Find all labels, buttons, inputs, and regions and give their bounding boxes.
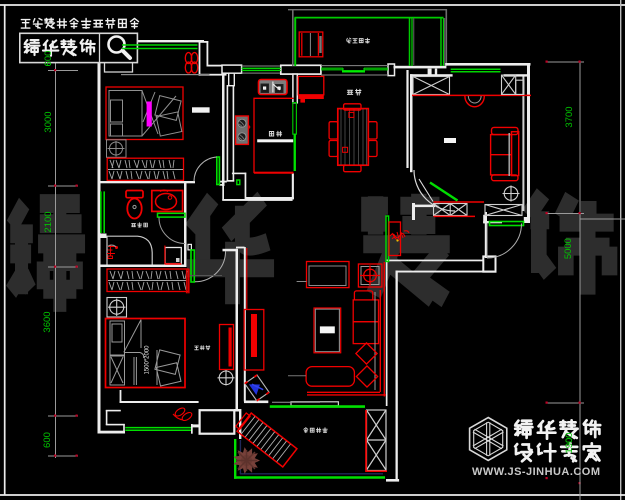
svg-text:WWW.JS-JINHUA.COM: WWW.JS-JINHUA.COM (472, 466, 600, 478)
svg-text:600: 600 (42, 432, 53, 448)
svg-text:3000: 3000 (43, 111, 54, 132)
svg-text:2100: 2100 (43, 211, 54, 232)
svg-text:600: 600 (43, 51, 54, 67)
svg-text:1500*2000: 1500*2000 (145, 345, 151, 375)
svg-text:5000: 5000 (563, 238, 574, 259)
svg-text:1900: 1900 (564, 432, 575, 453)
svg-text:3600: 3600 (42, 311, 53, 332)
svg-text:3700: 3700 (564, 106, 575, 127)
